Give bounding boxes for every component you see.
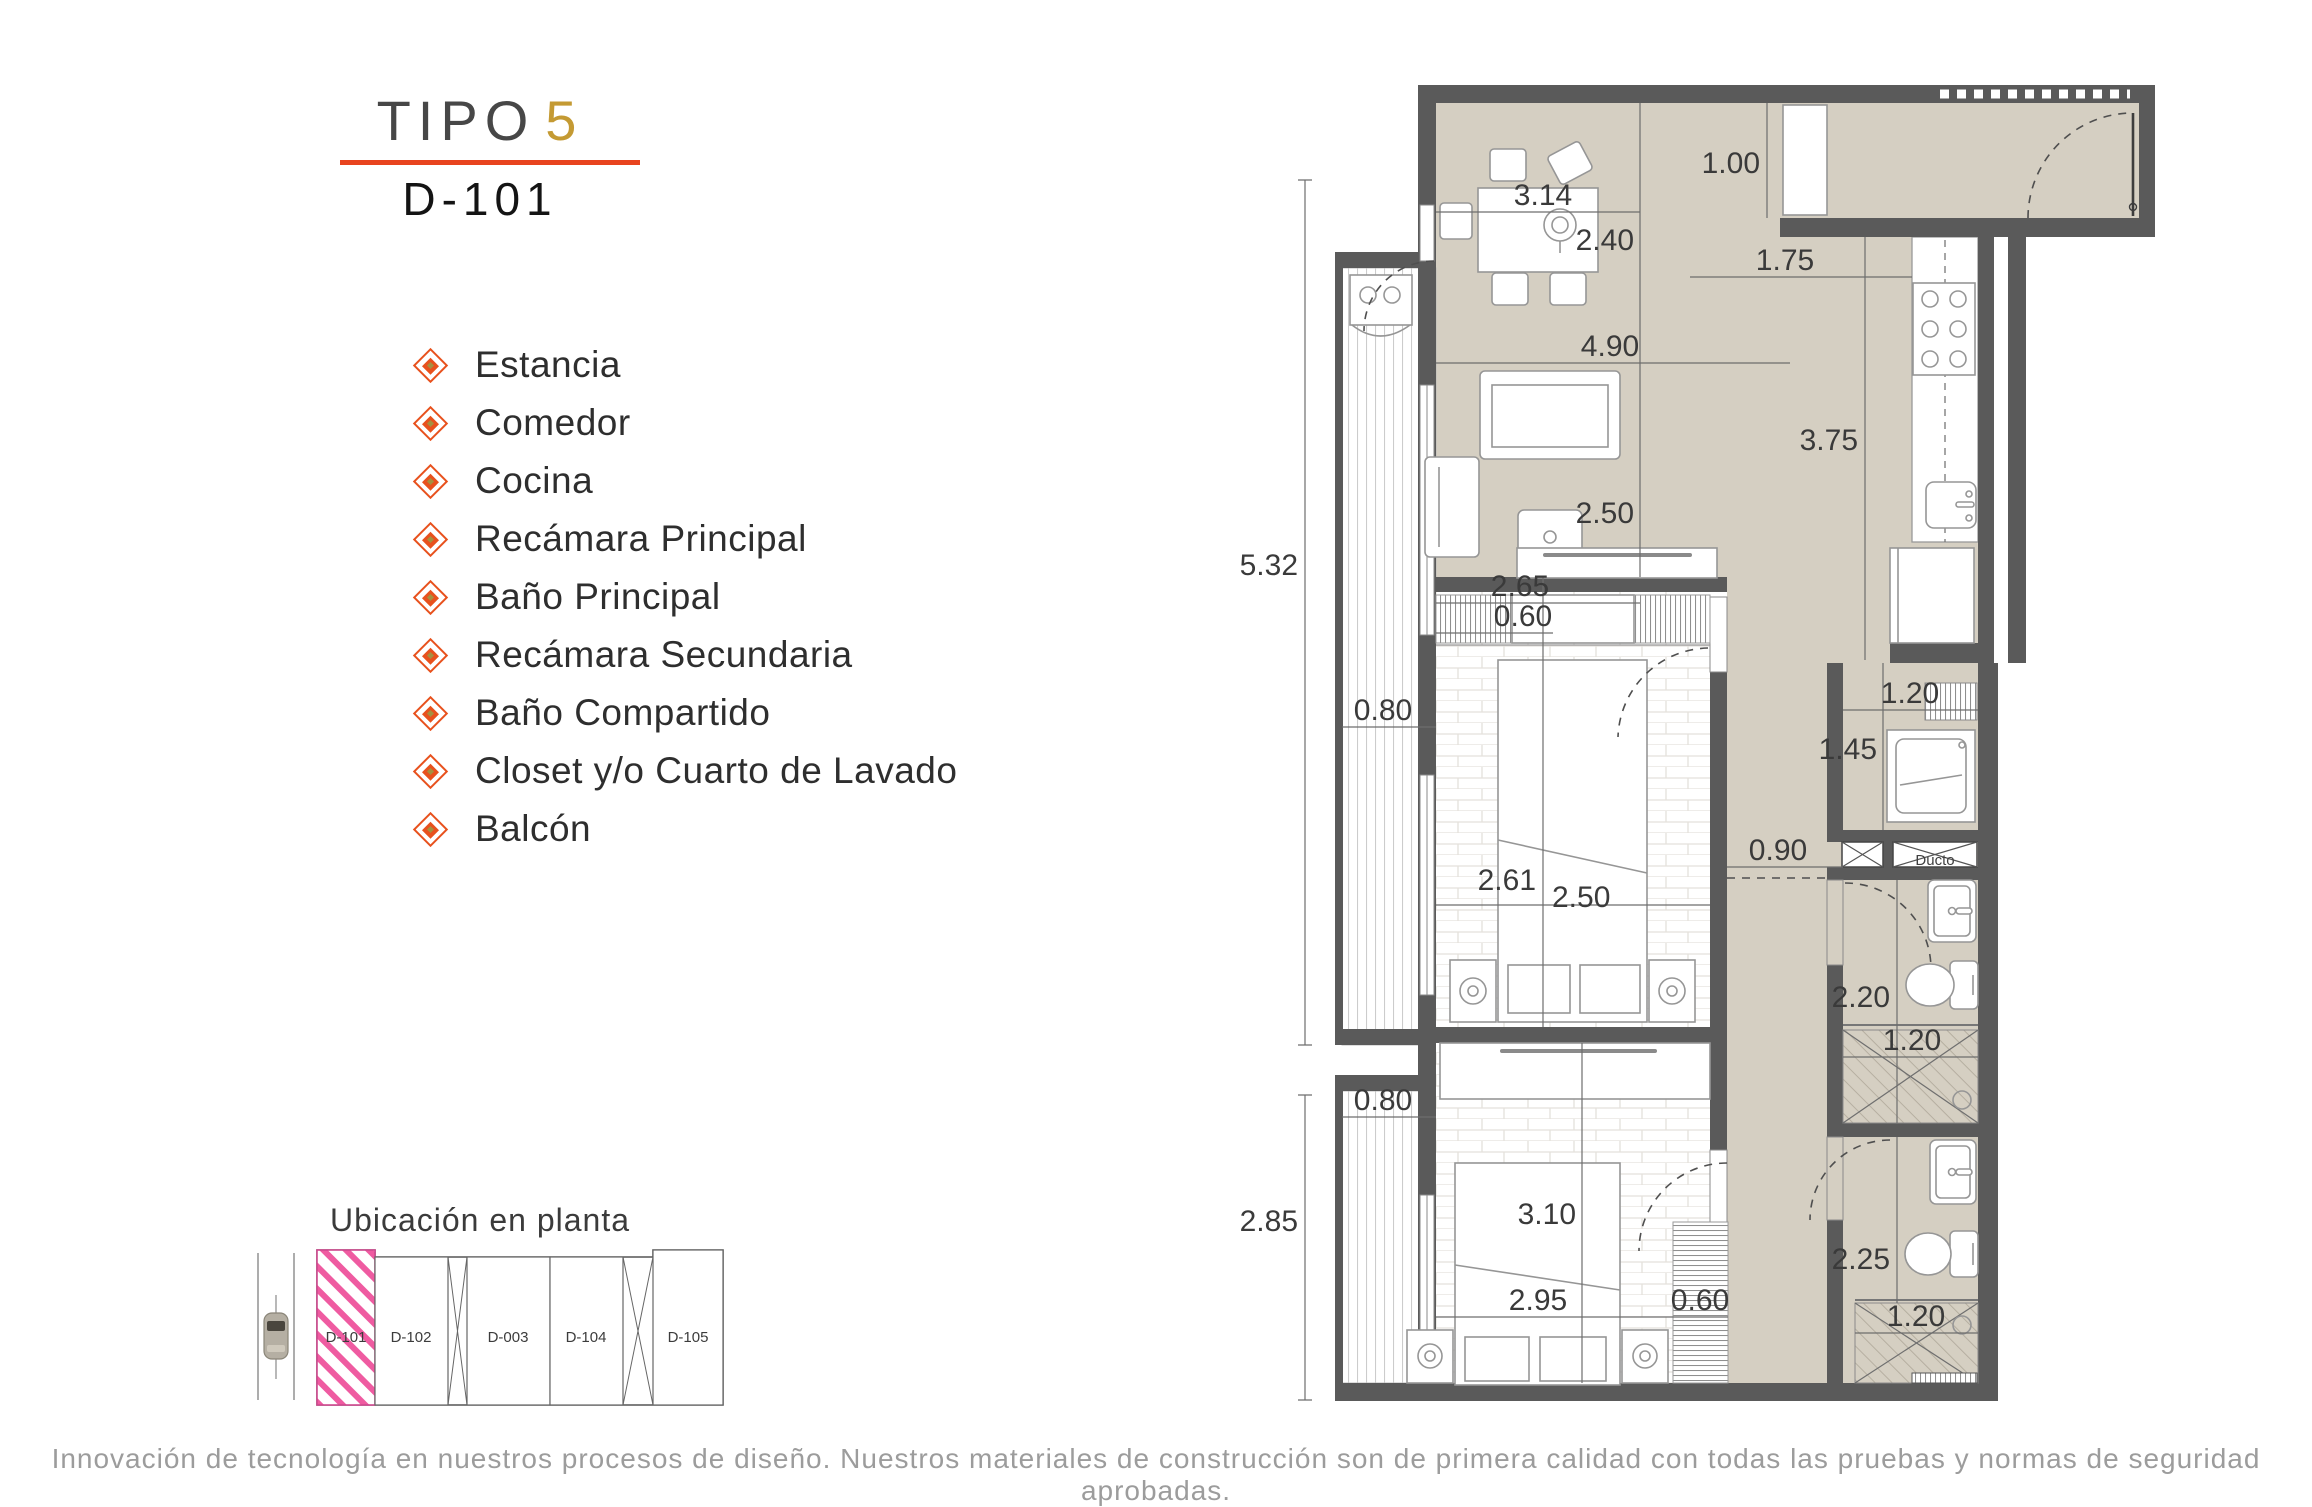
unit-cell [653,1250,723,1405]
location-map-title: Ubicación en planta [330,1202,630,1238]
dim-label: 4.90 [1581,330,1639,363]
unit-label: D-105 [668,1329,709,1346]
fridge-icon [1890,548,1974,643]
dim-label: 3.10 [1518,1198,1576,1231]
list-item: Closet y/o Cuarto de Lavado [413,742,957,800]
unit-cells [317,1250,723,1405]
list-item: Recámara Principal [413,510,957,568]
location-map-svg: Ubicación en planta D-101 D-102 D-003 D-… [250,1195,810,1435]
dim-label: 2.65 [1491,570,1549,603]
dim-label: 2.50 [1576,497,1634,530]
dim-label: 1.75 [1756,244,1814,277]
dim-label: 1.20 [1887,1300,1945,1333]
kitchen-sink-icon [1926,482,1976,528]
dim-label: 0.60 [1671,1284,1729,1317]
dim-label: 1.00 [1702,147,1760,180]
dim-label: 0.80 [1354,694,1412,727]
diamond-bullet-icon [413,812,447,846]
unit-label: D-003 [488,1329,529,1346]
diamond-bullet-icon [413,522,447,556]
dim-label: 3.14 [1514,179,1572,212]
title-tipo: TIPO [377,89,536,152]
dim-label: 2.20 [1832,981,1890,1014]
title-underline [340,160,640,165]
dim-label: 2.61 [1478,864,1536,897]
ducts: Ducto [1842,842,1977,869]
dim-label: 1.20 [1883,1024,1941,1057]
bath-sink-icon [1930,1140,1976,1204]
dim-label: 3.75 [1800,424,1858,457]
title-number: 5 [545,89,583,152]
diamond-bullet-icon [413,638,447,672]
dim-label: 2.85 [1240,1205,1298,1238]
list-item: Cocina [413,452,957,510]
dim-label: 2.50 [1552,881,1610,914]
room-label: Closet y/o Cuarto de Lavado [475,750,957,792]
list-item: Estancia [413,336,957,394]
duct-label: Ducto [1915,852,1954,869]
nightstand [1407,1330,1453,1383]
room-label: Estancia [475,344,621,386]
page-title: TIPO5 [230,88,730,153]
dim-label: 0.90 [1749,834,1807,867]
diamond-bullet-icon [413,580,447,614]
location-map: Ubicación en planta D-101 D-102 D-003 D-… [250,1195,810,1435]
nightstand [1649,960,1695,1022]
list-item: Comedor [413,394,957,452]
list-item: Recámara Secundaria [413,626,957,684]
car-icon [264,1295,288,1379]
dim-label: 0.60 [1494,600,1552,633]
stairs-icon [448,1257,467,1405]
diamond-bullet-icon [413,348,447,382]
toilet-icon [1906,961,1978,1009]
room-label: Baño Principal [475,576,721,618]
pantry-cabinet [1783,105,1827,215]
toilet-icon [1905,1231,1978,1277]
dim-label: 1.20 [1881,677,1939,710]
diamond-bullet-icon [413,754,447,788]
floor-plan: Ducto [1240,85,2160,1405]
room-label: Baño Compartido [475,692,770,734]
dim-label: 1.45 [1819,733,1877,766]
dim-label: 0.80 [1354,1084,1412,1117]
bath-sink-icon [1928,880,1976,942]
list-item: Balcón [413,800,957,858]
nightstand [1622,1330,1668,1383]
room-label: Cocina [475,460,593,502]
stove-icon [1913,283,1975,375]
nightstand [1450,960,1496,1022]
dim-label: 2.25 [1832,1243,1890,1276]
diamond-bullet-icon [413,406,447,440]
unit-label: D-104 [566,1329,607,1346]
unit-cell-highlighted [317,1250,375,1405]
room-label: Recámara Principal [475,518,807,560]
unit-label: D-101 [326,1329,367,1346]
unit-code: D-101 [230,172,730,226]
dim-label: 2.95 [1509,1284,1567,1317]
unit-label: D-102 [391,1329,432,1346]
list-item: Baño Principal [413,568,957,626]
armchair [1425,457,1479,557]
room-label: Balcón [475,808,591,850]
list-item: Baño Compartido [413,684,957,742]
diamond-bullet-icon [413,464,447,498]
dim-label: 2.40 [1576,224,1634,257]
room-label: Comedor [475,402,631,444]
room-legend: Estancia Comedor Cocina Recámara Princip… [413,336,957,858]
washer-icon [1887,730,1975,822]
floor-plan-svg: Ducto [1240,85,2160,1405]
room-label: Recámara Secundaria [475,634,853,676]
diamond-bullet-icon [413,696,447,730]
footer-text: Innovación de tecnología en nuestros pro… [0,1443,2312,1507]
dim-label: 5.32 [1240,549,1298,582]
stairs-icon [623,1257,653,1405]
